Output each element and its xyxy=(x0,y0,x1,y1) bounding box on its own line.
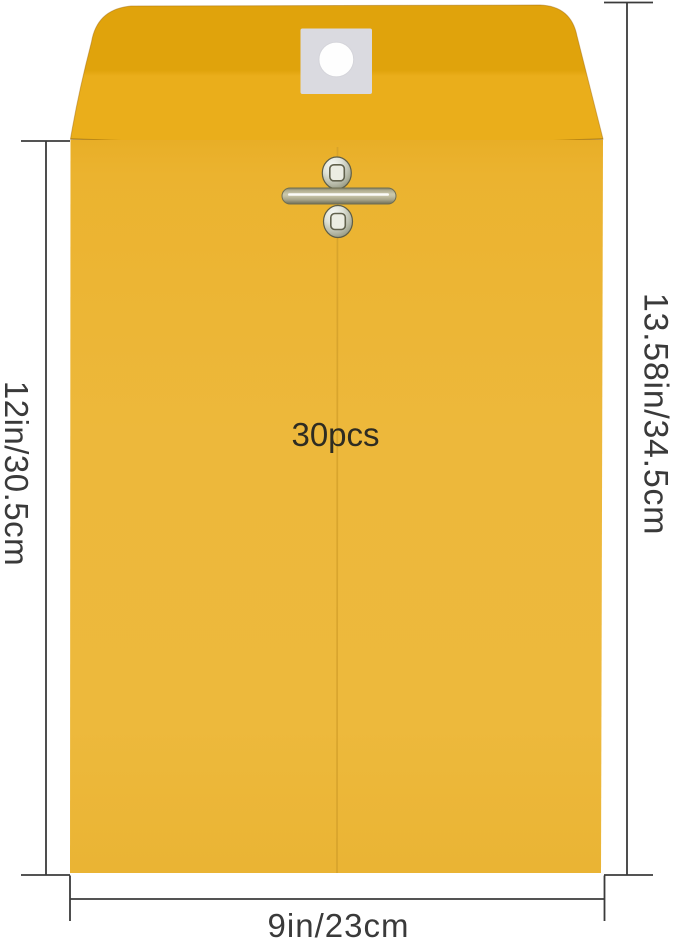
svg-text:13.58in/34.5cm: 13.58in/34.5cm xyxy=(637,293,675,535)
svg-text:30pcs: 30pcs xyxy=(291,416,379,453)
svg-text:9in/23cm: 9in/23cm xyxy=(268,907,410,942)
svg-text:12in/30.5cm: 12in/30.5cm xyxy=(0,381,35,566)
